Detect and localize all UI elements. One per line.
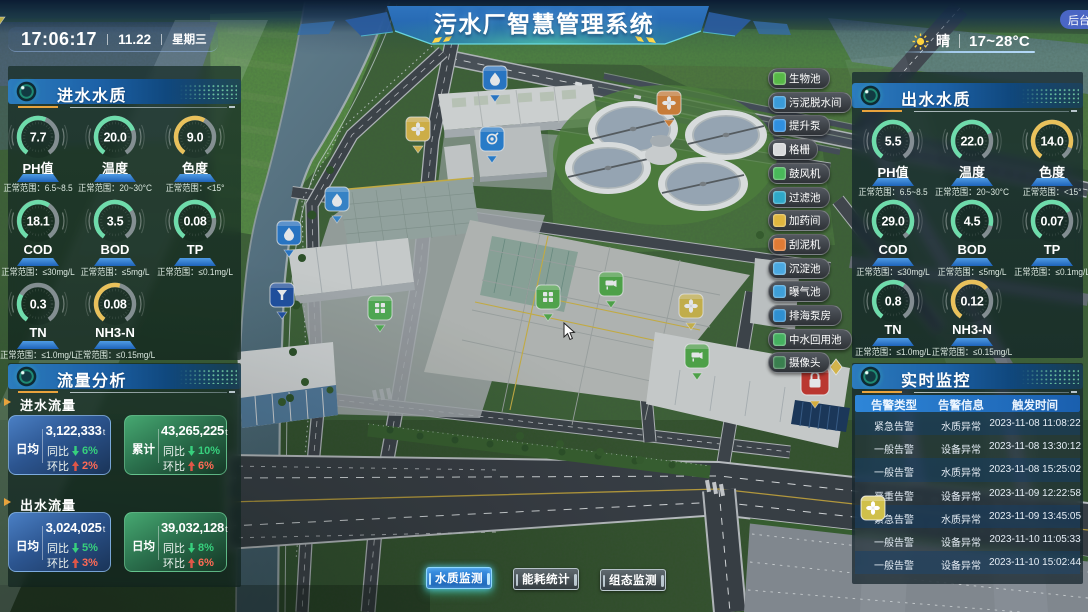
svg-text:0.08: 0.08 — [103, 298, 126, 312]
svg-text:22.0: 22.0 — [960, 135, 983, 149]
svg-text:0.8: 0.8 — [885, 295, 902, 309]
svg-text:0.08: 0.08 — [183, 215, 206, 229]
svg-text:14.0: 14.0 — [1040, 135, 1063, 149]
svg-text:0.12: 0.12 — [960, 295, 983, 309]
svg-text:29.0: 29.0 — [881, 215, 904, 229]
svg-text:7.7: 7.7 — [30, 131, 47, 145]
svg-text:20.0: 20.0 — [103, 131, 126, 145]
svg-text:0.3: 0.3 — [30, 298, 47, 312]
svg-text:3.5: 3.5 — [107, 215, 124, 229]
svg-text:4.5: 4.5 — [964, 215, 981, 229]
svg-text:5.5: 5.5 — [885, 135, 902, 149]
svg-text:18.1: 18.1 — [26, 215, 49, 229]
svg-text:0.07: 0.07 — [1040, 215, 1063, 229]
svg-text:9.0: 9.0 — [187, 131, 204, 145]
